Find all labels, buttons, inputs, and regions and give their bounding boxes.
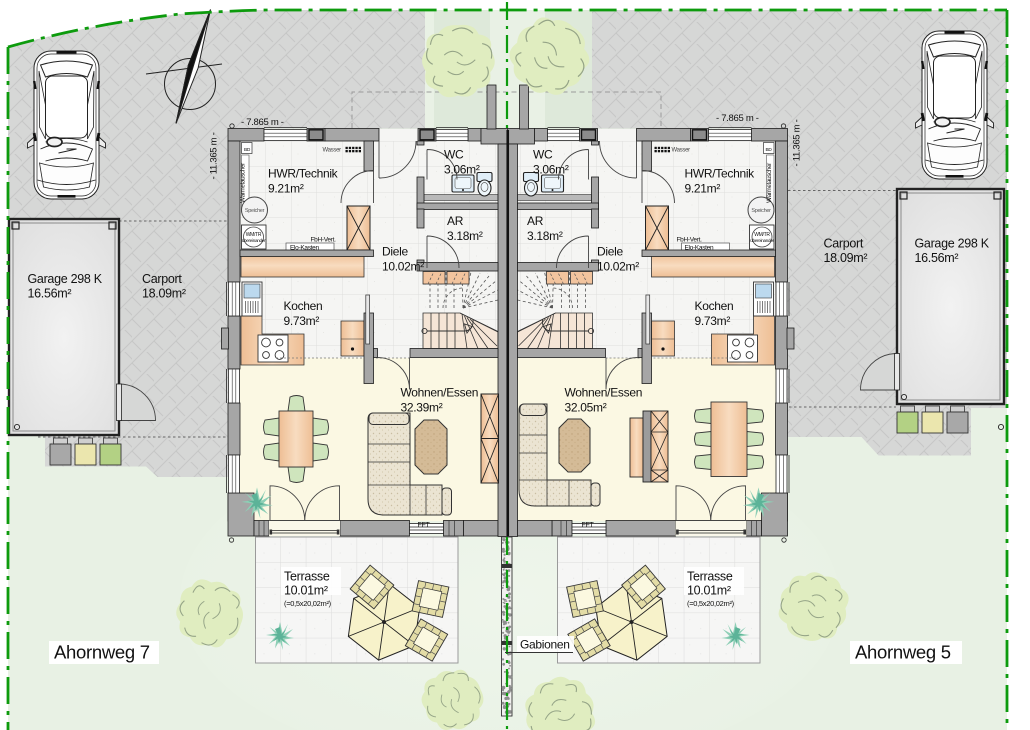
svg-text:AR: AR (527, 214, 544, 228)
svg-text:Speicher: Speicher (245, 208, 265, 214)
svg-text:BD: BD (765, 147, 772, 153)
svg-text:Terrasse: Terrasse (284, 570, 330, 584)
svg-text:3.06m²: 3.06m² (444, 163, 480, 177)
svg-text:- 11.365 m -: - 11.365 m - (209, 132, 220, 179)
svg-text:16.56m²: 16.56m² (28, 287, 72, 301)
svg-text:(=0,5x20,02m²): (=0,5x20,02m²) (687, 599, 735, 608)
svg-text:übereinander: übereinander (242, 238, 266, 243)
svg-text:- 11.365 m -: - 11.365 m - (792, 119, 803, 166)
svg-text:Speicher: Speicher (751, 208, 771, 214)
svg-text:Diele: Diele (382, 245, 408, 259)
svg-text:FFT: FFT (582, 522, 595, 529)
svg-text:BD: BD (244, 147, 251, 153)
svg-text:Carport: Carport (142, 272, 182, 286)
svg-text:32.39m²: 32.39m² (401, 401, 443, 415)
svg-text:Garage 298 K: Garage 298 K (915, 237, 990, 251)
svg-text:FFT: FFT (418, 522, 431, 529)
svg-text:9.21m²: 9.21m² (268, 182, 304, 196)
svg-text:Wärmetauscher: Wärmetauscher (240, 163, 247, 203)
svg-text:Wasser: Wasser (323, 148, 342, 154)
svg-text:- 7.865 m -: - 7.865 m - (716, 113, 759, 124)
svg-text:16.56m²: 16.56m² (915, 251, 959, 265)
svg-text:10.02m²: 10.02m² (597, 260, 639, 274)
svg-text:Gabionen: Gabionen (520, 638, 570, 652)
svg-text:Wohnen/Essen: Wohnen/Essen (401, 386, 479, 400)
svg-text:9.73m²: 9.73m² (284, 314, 320, 328)
svg-text:3.18m²: 3.18m² (447, 229, 483, 243)
svg-text:- 7.865 m -: - 7.865 m - (241, 117, 284, 128)
svg-text:HWR/Technik: HWR/Technik (685, 167, 756, 181)
svg-text:WC: WC (444, 148, 464, 162)
svg-text:Garage 298 K: Garage 298 K (28, 272, 103, 286)
svg-text:Ahornweg 5: Ahornweg 5 (855, 642, 951, 663)
svg-text:18.09m²: 18.09m² (142, 287, 186, 301)
svg-text:3.18m²: 3.18m² (527, 229, 563, 243)
svg-text:Ahornweg 7: Ahornweg 7 (54, 642, 150, 663)
svg-text:18.09m²: 18.09m² (824, 251, 868, 265)
svg-text:10.01m²: 10.01m² (284, 584, 328, 598)
svg-text:10.01m²: 10.01m² (687, 584, 731, 598)
svg-text:(=0,5x20,02m²): (=0,5x20,02m²) (284, 599, 332, 608)
svg-text:WC: WC (533, 148, 553, 162)
svg-text:übereinander: übereinander (750, 238, 774, 243)
svg-text:Elo-Kasten: Elo-Kasten (685, 245, 714, 252)
svg-text:9.21m²: 9.21m² (685, 182, 721, 196)
svg-text:3.06m²: 3.06m² (533, 163, 569, 177)
svg-text:Kochen: Kochen (284, 299, 323, 313)
svg-text:AR: AR (447, 214, 464, 228)
svg-text:Wärmetauscher: Wärmetauscher (766, 163, 773, 203)
svg-text:Kochen: Kochen (695, 299, 734, 313)
svg-text:HWR/Technik: HWR/Technik (268, 167, 339, 181)
svg-text:FbH-Vert.: FbH-Vert. (677, 237, 703, 244)
svg-text:10.02m²: 10.02m² (382, 260, 424, 274)
svg-text:Wasser: Wasser (672, 148, 691, 154)
svg-text:Terrasse: Terrasse (687, 570, 733, 584)
svg-text:Carport: Carport (824, 237, 864, 251)
svg-text:Wohnen/Essen: Wohnen/Essen (565, 386, 643, 400)
svg-text:FbH-Vert.: FbH-Vert. (311, 237, 337, 244)
svg-text:9.73m²: 9.73m² (695, 314, 731, 328)
svg-text:Elo-Kasten: Elo-Kasten (290, 245, 319, 252)
svg-text:Diele: Diele (597, 245, 623, 259)
svg-text:32.05m²: 32.05m² (565, 401, 607, 415)
